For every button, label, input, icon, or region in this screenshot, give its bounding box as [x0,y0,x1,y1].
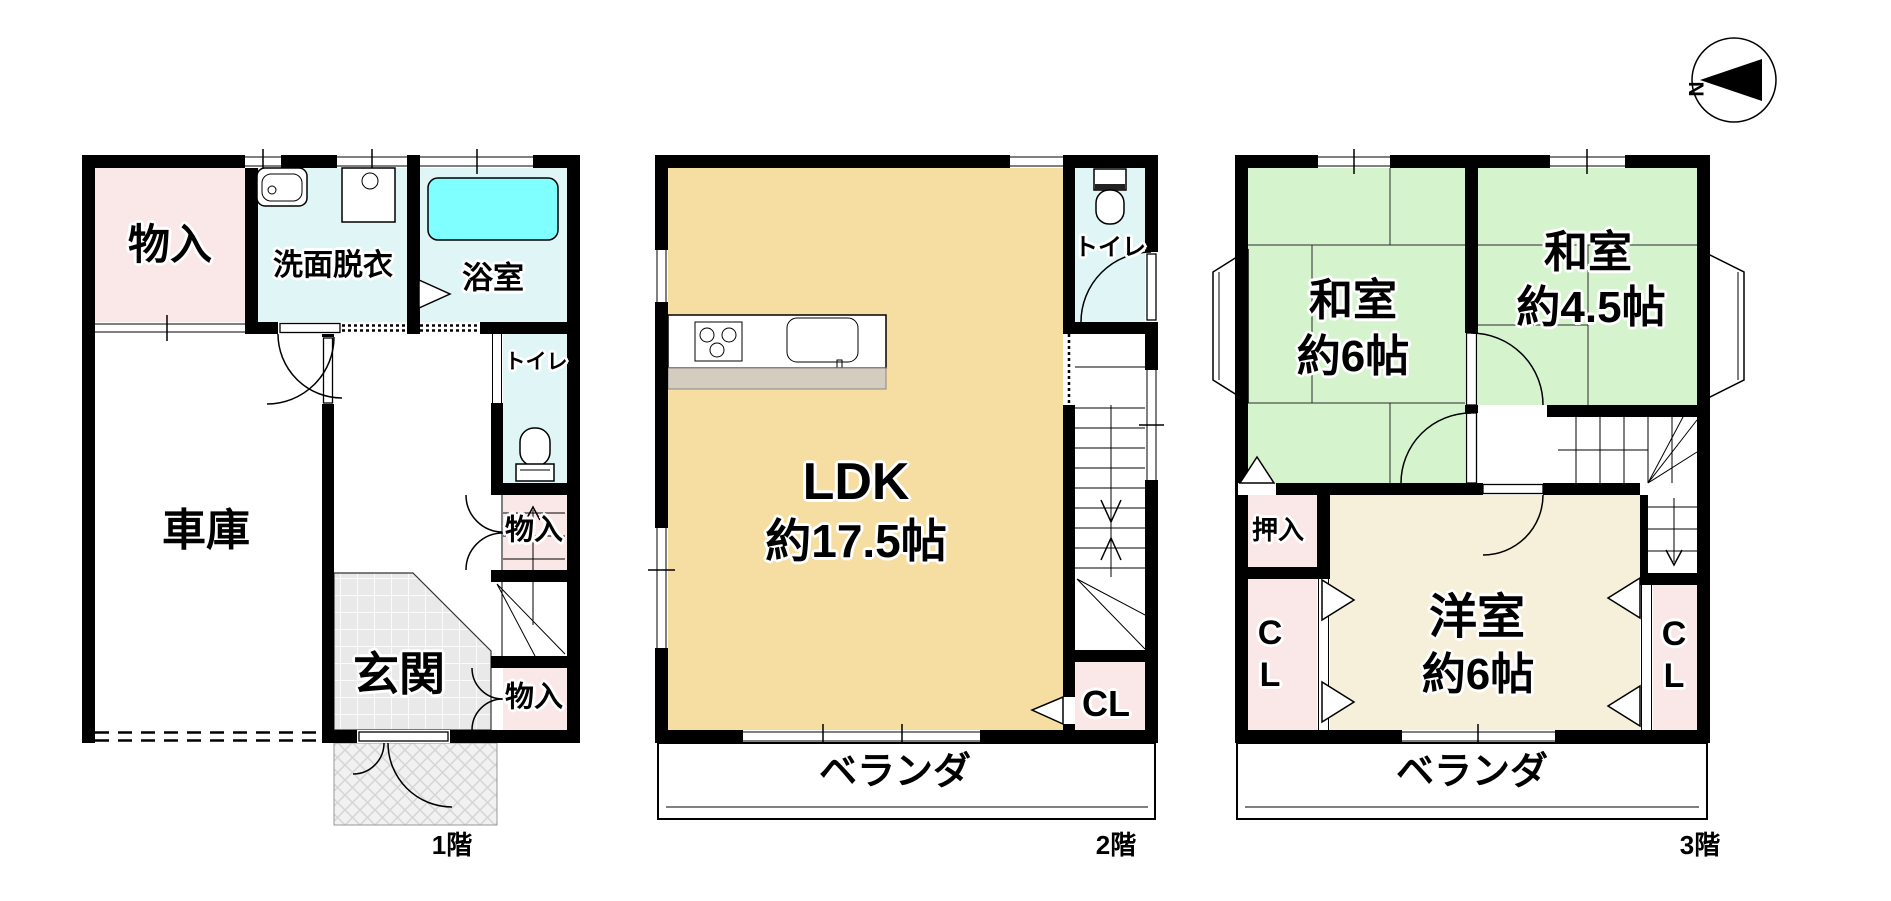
room-label-washitsu45: 和室 [1544,231,1632,275]
veranda-2f-label: ベランダ [819,753,971,791]
sink-icon [257,168,307,206]
room-label-washitsu6-size: 約6帖 [1297,335,1409,379]
room-ldk [668,168,1063,730]
room-label-closet-3f-left: CL [1253,614,1287,698]
room-label-storage-top: 物入 [128,224,212,266]
bathtub-icon [428,178,558,240]
room-label-washitsu6: 和室 [1309,279,1397,323]
room-label-toilet-2f: トイレ [1074,236,1146,260]
room-washitsu-6 [1248,168,1465,483]
floor3-label: 3階 [1680,832,1720,858]
room-label-storage-mid: 物入 [505,517,563,546]
room-label-oshiire: 押入 [1252,517,1304,543]
room-label-ldk-size: 約17.5帖 [765,518,947,564]
washing-machine-icon [342,168,395,222]
room-label-closet-2f: CL [1082,686,1130,722]
floor-plan-canvas: 物入 洗面脱衣 浴室 車庫 トイレ 物入 玄関 物入 1階 LDK 約17.5帖… [0,0,1891,901]
veranda-3f-label: ベランダ [1396,753,1548,791]
room-label-toilet-1f: トイレ [505,352,568,373]
room-label-washitsu45-size: 約4.5帖 [1516,286,1665,330]
room-label-closet-3f-right: CL [1657,615,1691,699]
room-label-storage-bottom: 物入 [505,684,563,713]
room-label-garage: 車庫 [162,509,250,553]
compass-north-label: N [1687,81,1708,96]
room-label-ldk: LDK [803,456,910,508]
compass-icon [1692,38,1776,122]
floor2-label: 2階 [1096,832,1136,858]
floor3-plan [1213,149,1744,819]
counter-edge [668,368,886,389]
room-label-bathroom: 浴室 [462,263,524,294]
floor1-label: 1階 [432,832,472,858]
toilet-icon-1f [516,428,554,481]
kitchen-counter [668,315,886,389]
room-label-entrance: 玄関 [353,651,445,697]
room-label-western: 洋室 [1429,594,1525,642]
toilet-icon-2f [1094,169,1126,224]
entrance-porch [334,743,497,825]
room-label-washroom: 洗面脱衣 [273,251,393,281]
room-label-western-size: 約6帖 [1422,653,1534,697]
